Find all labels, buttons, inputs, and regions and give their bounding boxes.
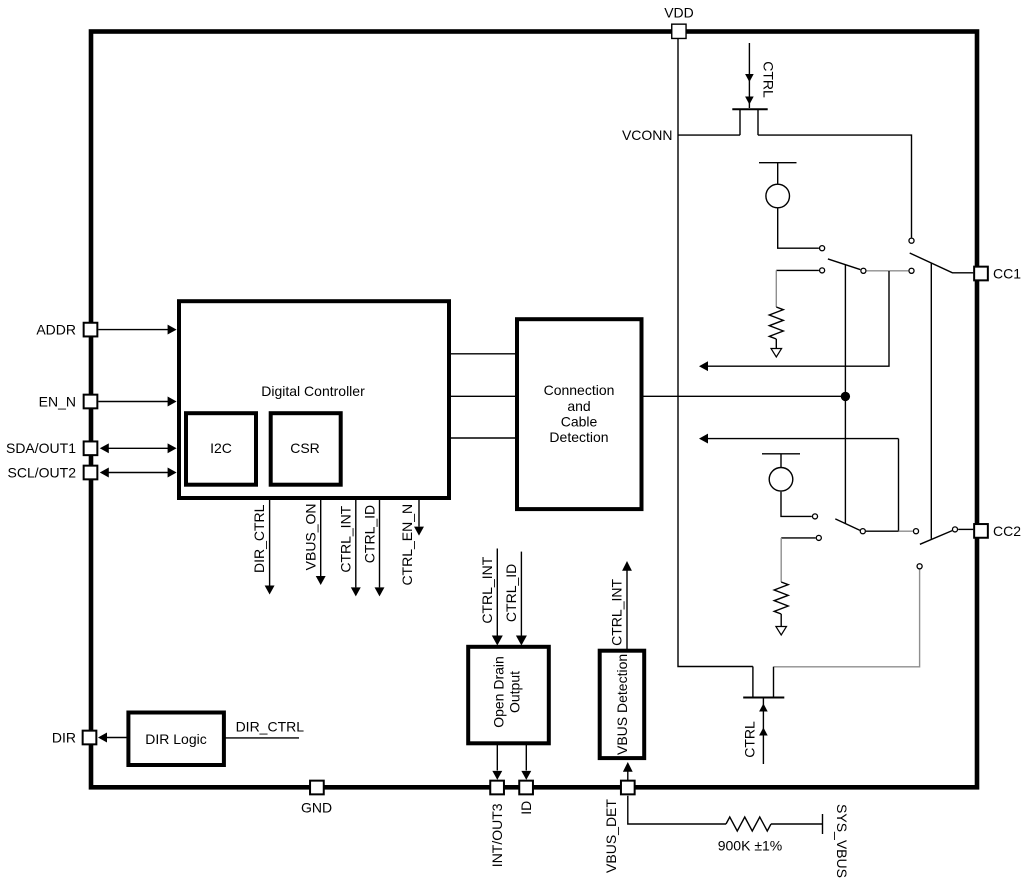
svg-text:and: and <box>567 398 590 414</box>
svg-text:CTRL: CTRL <box>742 721 758 758</box>
svg-text:CTRL_ID: CTRL_ID <box>503 564 519 622</box>
svg-text:VDD: VDD <box>664 4 694 20</box>
svg-text:CTRL: CTRL <box>761 61 777 98</box>
svg-text:VBUS Detection: VBUS Detection <box>614 654 630 755</box>
svg-text:DIR_CTRL: DIR_CTRL <box>236 718 305 734</box>
svg-text:ID: ID <box>518 801 534 815</box>
svg-text:CTRL_INT: CTRL_INT <box>338 505 354 572</box>
svg-text:CTRL_EN_N: CTRL_EN_N <box>399 504 415 586</box>
svg-text:DIR_CTRL: DIR_CTRL <box>251 504 267 573</box>
svg-text:CTRL_INT: CTRL_INT <box>479 556 495 623</box>
svg-text:Connection: Connection <box>544 382 615 398</box>
svg-text:CC2: CC2 <box>993 523 1021 539</box>
svg-text:DIR Logic: DIR Logic <box>145 731 206 747</box>
svg-text:SDA/OUT1: SDA/OUT1 <box>6 440 76 456</box>
svg-text:EN_N: EN_N <box>39 393 76 409</box>
svg-text:CTRL_ID: CTRL_ID <box>361 505 377 563</box>
svg-text:Detection: Detection <box>549 429 608 445</box>
svg-text:Digital Controller: Digital Controller <box>261 383 365 399</box>
svg-text:CC1: CC1 <box>993 265 1021 281</box>
svg-text:VBUS_ON: VBUS_ON <box>302 503 318 570</box>
svg-text:INT/OUT3: INT/OUT3 <box>489 803 505 867</box>
svg-text:I2C: I2C <box>210 440 232 456</box>
svg-text:CTRL_INT: CTRL_INT <box>609 579 625 646</box>
svg-text:CSR: CSR <box>290 440 320 456</box>
svg-text:SYS_VBUS: SYS_VBUS <box>834 804 850 878</box>
svg-text:ADDR: ADDR <box>36 321 76 337</box>
svg-text:900K ±1%: 900K ±1% <box>718 838 783 854</box>
svg-text:DIR: DIR <box>52 729 76 745</box>
svg-text:VBUS_DET: VBUS_DET <box>603 799 619 873</box>
svg-text:Cable: Cable <box>561 413 598 429</box>
svg-text:SCL/OUT2: SCL/OUT2 <box>8 464 77 480</box>
svg-text:VCONN: VCONN <box>622 127 673 143</box>
svg-text:GND: GND <box>301 800 332 816</box>
